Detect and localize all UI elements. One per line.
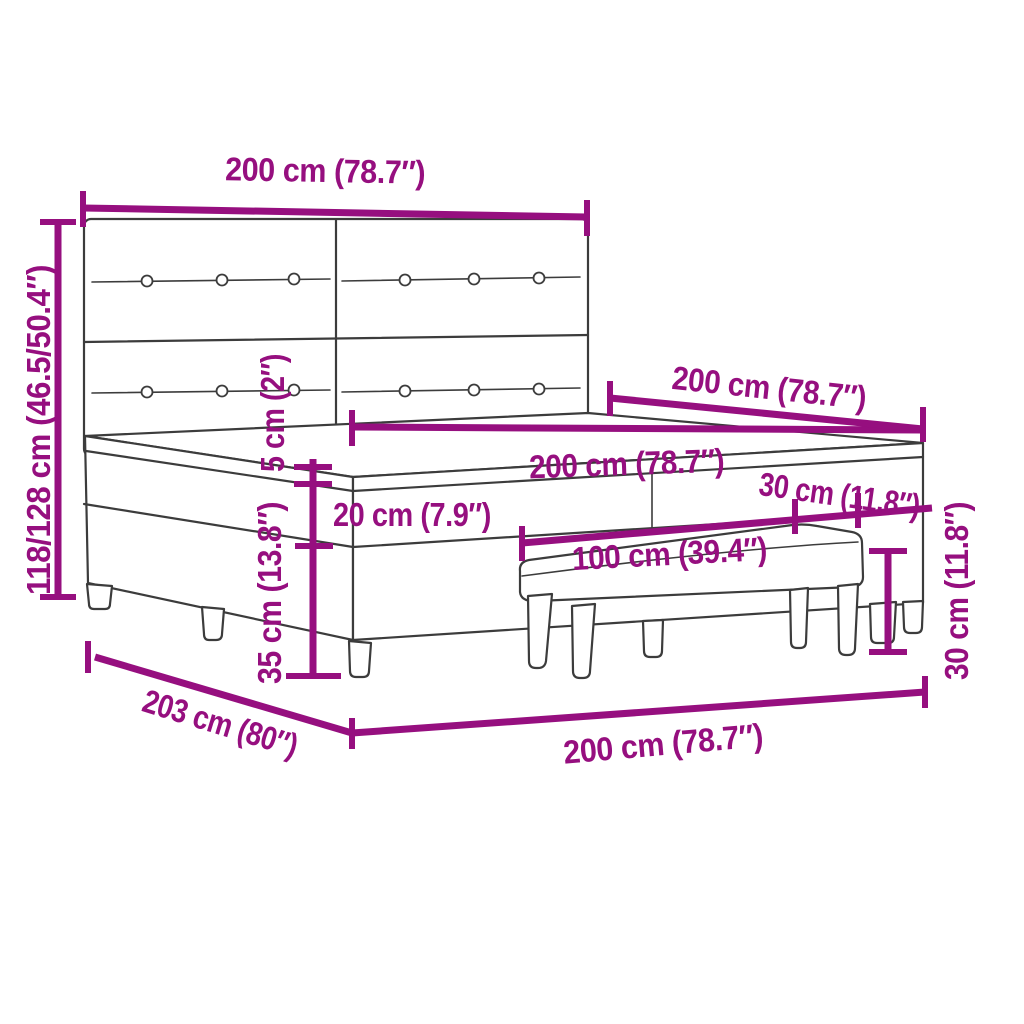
diagram-canvas: 200 cm (78.7″) 118/128 cm (46.5/50.4″) 5… xyxy=(0,0,1024,1024)
bench-leg xyxy=(790,588,808,648)
dim-label-overall-height: 118/128 cm (46.5/50.4″) xyxy=(20,265,57,595)
dim-label-topper-thickness: 5 cm (2″) xyxy=(254,354,291,472)
bed-leg xyxy=(87,584,112,609)
dim-overall-height: 118/128 cm (46.5/50.4″) xyxy=(20,222,76,597)
bed-leg xyxy=(870,602,896,643)
dim-label-mattress-thickness: 20 cm (7.9″) xyxy=(333,496,491,533)
bed-dimension-diagram: 200 cm (78.7″) 118/128 cm (46.5/50.4″) 5… xyxy=(0,0,1024,1024)
bed-leg xyxy=(903,601,923,633)
dim-label-headboard-width: 200 cm (78.7″) xyxy=(225,150,426,190)
line-art xyxy=(84,219,923,678)
dim-label-base-height: 35 cm (13.8″) xyxy=(251,502,288,684)
dim-label-bench-height: 30 cm (11.8″) xyxy=(938,502,975,680)
bed-leg xyxy=(643,620,663,657)
bench-leg xyxy=(572,604,595,678)
bed-leg xyxy=(202,607,224,640)
bed-leg xyxy=(349,641,371,677)
dim-label-overall-width: 200 cm (78.7″) xyxy=(562,716,764,770)
bench-leg xyxy=(528,594,552,668)
dim-label-mattress-width: 200 cm (78.7″) xyxy=(529,442,725,486)
dim-overall-width: 200 cm (78.7″) xyxy=(352,676,925,771)
bench-leg xyxy=(838,584,858,655)
